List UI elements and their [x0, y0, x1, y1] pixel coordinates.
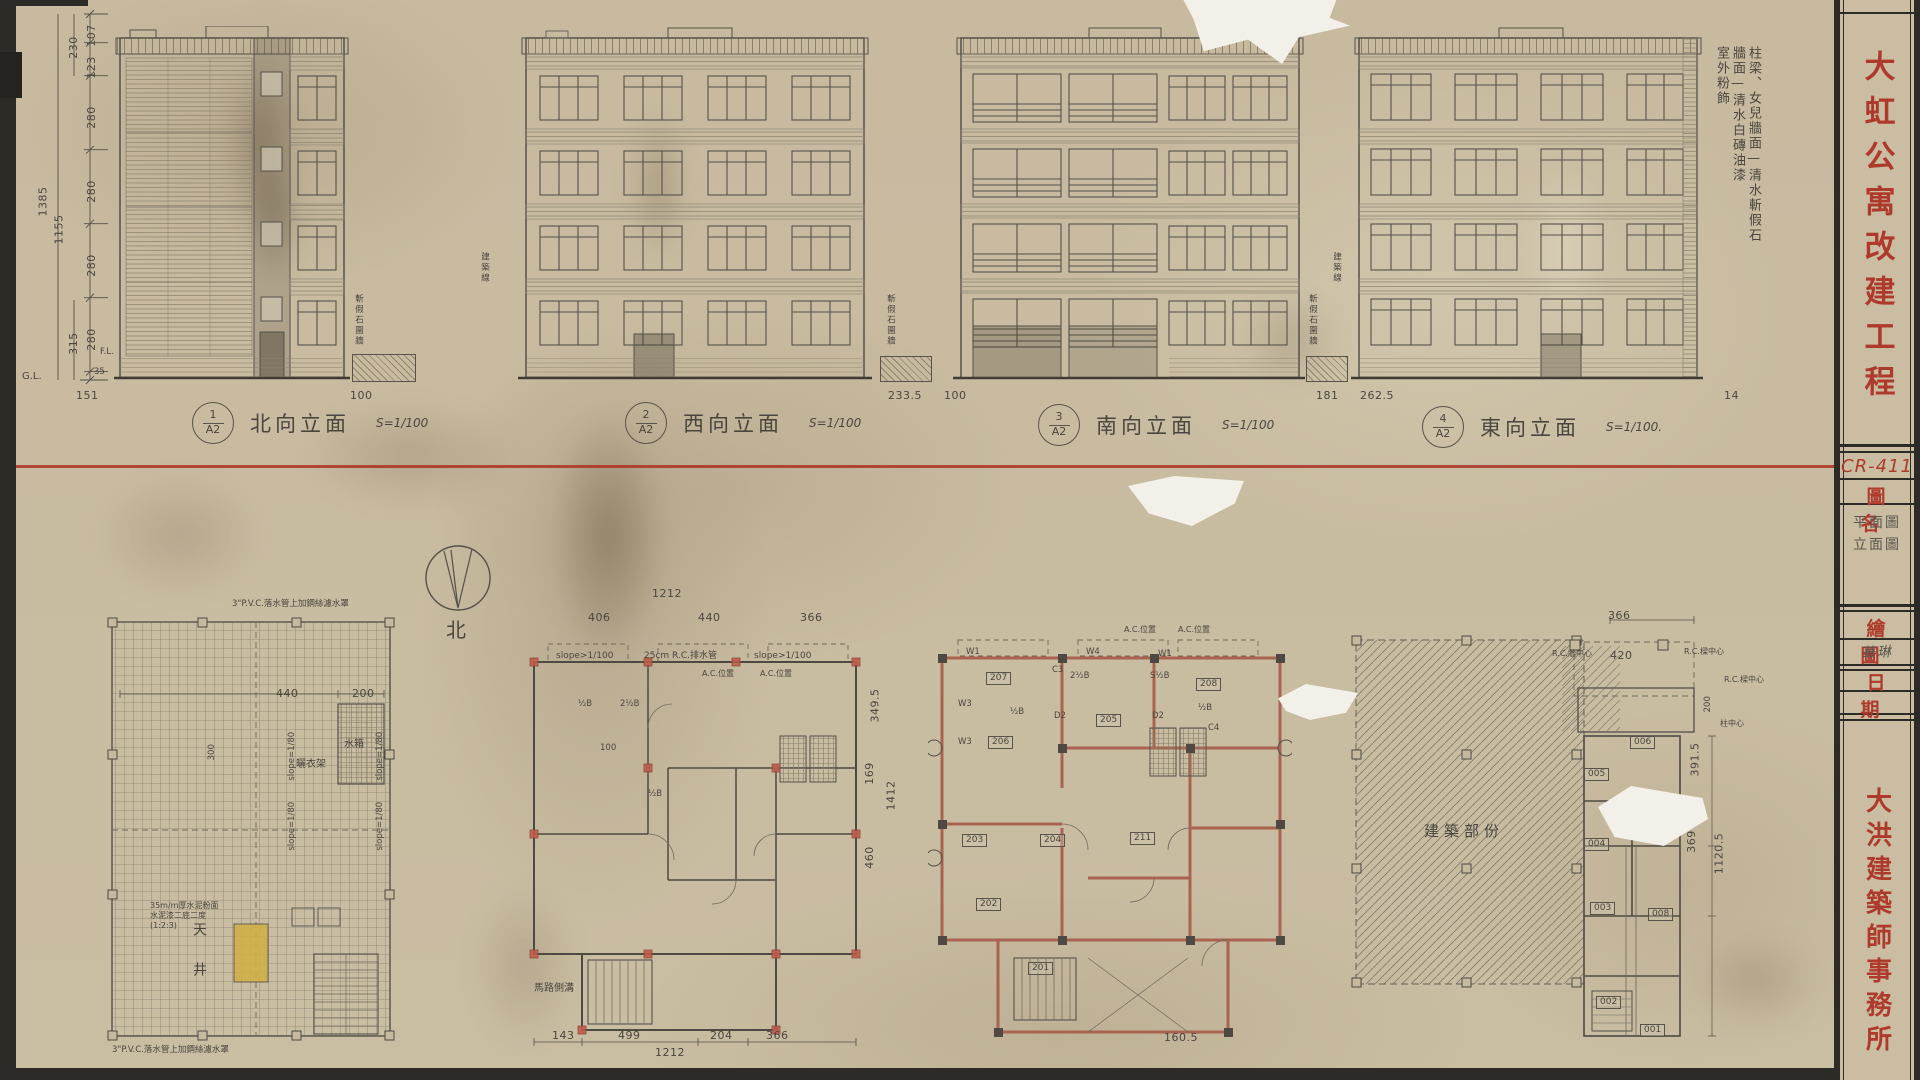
window-mark: W3: [958, 700, 972, 709]
existing-building-label: 建築部份: [1424, 824, 1504, 839]
elevation-scale: S=1/100: [376, 416, 428, 430]
blueprint-sheet: 107 123 280 280 280 280 35 230 315 1385 …: [0, 0, 1920, 1080]
ground-dim: 262.5: [1360, 390, 1394, 401]
plan2-right-dim: 169: [864, 762, 875, 785]
bubble-number: 3: [1049, 411, 1070, 426]
window-mark: W1: [966, 648, 980, 657]
sheet-border-top: [0, 0, 88, 6]
plan2-top-dim: 406: [588, 612, 611, 623]
dim-35: 35: [94, 368, 105, 377]
north-elevation-drawing: [114, 26, 350, 386]
detail-bubble: 1A2: [192, 402, 234, 444]
dim-230: 230: [68, 36, 79, 59]
elevation-scale: S=1/100: [809, 416, 861, 430]
fence-note: 斬假石圍牆: [354, 294, 363, 347]
slope-note: slope=1/80: [288, 802, 297, 851]
bubble-number: 1: [203, 409, 224, 424]
dim-280: 280: [86, 328, 97, 351]
room-number: 202: [976, 898, 1001, 911]
window-mark: C3: [1052, 666, 1063, 675]
roof-finish-note: (1:2:3): [150, 922, 177, 930]
title-block: 大虹公寓改建工程 CR-411 圖名 平面圖 立面圖 繪圖 華琳 日期 大洪建築…: [1834, 0, 1920, 1080]
plan5-dim: 420: [1610, 650, 1633, 661]
wall-thickness-mark: 2½B: [1070, 672, 1089, 681]
dim-1385: 1385: [38, 187, 49, 217]
beam-centerline-note: R.C.樑中心: [1684, 648, 1724, 656]
sheet-border-left: [0, 0, 16, 1080]
slope-note: slope=1/80: [376, 802, 385, 851]
detail-bubble: 2A2: [625, 402, 667, 444]
plan2-right-total: 1412: [886, 781, 897, 811]
wall-centerline-note: R.C.牆中心: [1552, 650, 1592, 658]
building-line-note: 建築線: [480, 252, 489, 284]
slope-note: slope=1/80: [288, 732, 297, 781]
finish-note-line: 室外粉飾: [1715, 46, 1728, 326]
red-divider-line: [0, 465, 1834, 468]
roof-dim-440: 440: [276, 688, 299, 699]
door-mark: D2: [1054, 712, 1066, 721]
bubble-sheet: A2: [1436, 428, 1451, 441]
wall-thickness-mark: ½B: [648, 790, 662, 799]
title-block-rule: [1840, 451, 1914, 453]
detail-bubble: 4A2: [1422, 406, 1464, 448]
drain-note: 25cm R.C.排水管: [644, 652, 717, 661]
project-title-cell: 大虹公寓改建工程: [1840, 20, 1914, 440]
east-elevation-drawing: [1351, 26, 1703, 386]
plan2-right-dim: 460: [864, 846, 875, 869]
finish-note-line: 柱梁、女兒牆面—清水斬假石: [1747, 46, 1760, 326]
detail-bubble: 3A2: [1038, 404, 1080, 446]
water-tank-label: 水箱: [344, 740, 364, 750]
elevation-scale: S=1/100: [1222, 418, 1274, 432]
room-number: 205: [1096, 714, 1121, 727]
plan5-dim: 200: [1704, 696, 1713, 712]
wall-thickness-mark: ½B: [1198, 704, 1212, 713]
title-block-rule: [1840, 604, 1914, 607]
ac-position-note: A.C.位置: [702, 670, 734, 678]
window-mark: W1: [1158, 650, 1172, 659]
fence-note: 斬假石圍牆: [1308, 294, 1317, 347]
sheet-border-left-blob: [0, 52, 22, 98]
wall-thickness-mark: ½B: [578, 700, 592, 709]
column-centerline-note: 柱中心: [1720, 720, 1744, 728]
fence-wall: [1306, 356, 1348, 382]
wall-thickness-mark: ½B: [1010, 708, 1024, 717]
north-compass-icon: [418, 542, 510, 618]
wall-thickness-mark: S½B: [1150, 672, 1169, 681]
ac-position-note: A.C.位置: [1124, 626, 1156, 634]
dim-315: 315: [68, 332, 79, 355]
downspout-note: 3"P.V.C.落水管上加鋼絲濾水罩: [232, 600, 349, 609]
typical-floor-plan-drawing: [518, 628, 872, 1060]
elevation-title: 南向立面: [1096, 410, 1196, 440]
elevation-caption-south: 3A2 南向立面 S=1/100: [1038, 404, 1274, 446]
room-number: 002: [1596, 996, 1621, 1009]
elevation-scale: S=1/100.: [1606, 420, 1662, 434]
plan2-right-dim: 349.5: [870, 689, 881, 723]
roof-finish-note: 水泥漆二底二度: [150, 912, 206, 920]
bubble-number: 2: [636, 409, 657, 424]
stain: [95, 470, 265, 600]
ground-dim: 100: [350, 390, 373, 401]
elevation-title: 北向立面: [250, 408, 350, 438]
room-number: 211: [1130, 832, 1155, 845]
ac-position-note: A.C.位置: [760, 670, 792, 678]
roof-plan-drawing: [106, 612, 398, 1048]
sheet-border-bottom: [0, 1068, 1920, 1080]
plan5-dim: 1120.5: [1713, 833, 1724, 875]
plan2-top-total: 1212: [652, 588, 682, 599]
title-block-rule: [1840, 610, 1914, 612]
elevation-title: 西向立面: [683, 408, 783, 438]
plan2-bottom-dim: 499: [618, 1030, 641, 1041]
ground-dim: 151: [76, 390, 99, 401]
dim-280: 280: [86, 254, 97, 277]
beam-centerline-note: R.C.樑中心: [1724, 676, 1764, 684]
downspout-note: 3"P.V.C.落水管上加鋼絲濾水罩: [112, 1046, 229, 1055]
elevation-caption-west: 2A2 西向立面 S=1/100: [625, 402, 861, 444]
ground-dim: 100: [944, 390, 967, 401]
roof-finish-note: 35m/m厚水泥粉面: [150, 902, 218, 910]
room-number: 004: [1584, 838, 1609, 851]
room-number: 207: [986, 672, 1011, 685]
building-line-note: 建築線: [1332, 252, 1341, 284]
project-title: 大虹公寓改建工程: [1855, 20, 1900, 440]
west-elevation-drawing: [518, 26, 872, 386]
title-block-rule: [1840, 444, 1914, 447]
plan5-dim: 369: [1686, 830, 1697, 853]
plan2-bottom-total: 1212: [655, 1047, 685, 1058]
ac-position-note: A.C.位置: [1178, 626, 1210, 634]
dim-107: 107: [86, 24, 97, 47]
door-mark: D2: [1152, 712, 1164, 721]
room-number: 005: [1584, 768, 1609, 781]
drawn-by-signature: 華琳: [1840, 640, 1915, 664]
paper-tear: [1128, 476, 1244, 526]
room-number: 204: [1040, 834, 1065, 847]
dim-123: 123: [86, 56, 97, 79]
room-number: 001: [1640, 1024, 1665, 1037]
lightwell-label: 天井: [192, 922, 206, 1002]
bubble-sheet: A2: [206, 424, 221, 437]
elevation-caption-north: 1A2 北向立面 S=1/100: [192, 402, 428, 444]
hatched-building-plan-drawing: [1346, 626, 1594, 998]
date-field-label: 日期: [1840, 668, 1914, 722]
room-number: 208: [1196, 678, 1221, 691]
plan3-bottom-dim: 160.5: [1164, 1032, 1198, 1043]
slope-note: slope>1/100: [754, 652, 811, 661]
window-mark: C4: [1208, 724, 1219, 733]
ground-dim: 233.5: [888, 390, 922, 401]
ground-line-label: G.L.: [22, 372, 42, 382]
plan2-top-dim: 440: [698, 612, 721, 623]
room-number: 203: [962, 834, 987, 847]
dim-1155: 1155: [54, 215, 65, 245]
drawing-name-value-line2: 立面圖: [1840, 534, 1914, 554]
roof-dim-300: 300: [208, 744, 217, 760]
elevation-title: 東向立面: [1480, 412, 1580, 442]
fence-wall: [880, 356, 932, 382]
drawing-name-value-line1: 平面圖: [1840, 512, 1914, 532]
dim-280: 280: [86, 106, 97, 129]
sheet-number: CR-411: [1840, 456, 1914, 477]
dim-280: 280: [86, 180, 97, 203]
window-mark: W4: [1086, 648, 1100, 657]
plan2-bottom-dim: 366: [766, 1030, 789, 1041]
road-gutter-note: 馬路側溝: [534, 984, 574, 994]
firm-name-cell: 大洪建築師事務所: [1840, 778, 1914, 1068]
room-number: 201: [1028, 962, 1053, 975]
title-block-rule: [1840, 478, 1914, 480]
exterior-finish-notes: 柱梁、女兒牆面—清水斬假石 牆面—清水白磚油漆 室外粉飾: [1712, 46, 1763, 326]
plan2-top-dim: 366: [800, 612, 823, 623]
wall-thickness-mark: 2½B: [620, 700, 639, 709]
roof-dim-200: 200: [352, 688, 375, 699]
window-mark: W3: [958, 738, 972, 747]
room-number: 008: [1648, 908, 1673, 921]
room-number: 006: [1630, 736, 1655, 749]
fence-wall: [352, 354, 416, 382]
bubble-number: 4: [1433, 413, 1454, 428]
ground-dim: 14: [1724, 390, 1739, 401]
plan2-bottom-dim: 143: [552, 1030, 575, 1041]
elevation-caption-east: 4A2 東向立面 S=1/100.: [1422, 406, 1662, 448]
ground-dim: 181: [1316, 390, 1339, 401]
room-number: 206: [988, 736, 1013, 749]
plan2-bottom-dim: 204: [710, 1030, 733, 1041]
plan5-dim: 366: [1608, 610, 1631, 621]
bubble-sheet: A2: [1052, 426, 1067, 439]
room-number: 003: [1590, 902, 1615, 915]
firm-name: 大洪建築師事務所: [1859, 778, 1896, 1068]
slope-note: slope>1/100: [556, 652, 613, 661]
bubble-sheet: A2: [639, 424, 654, 437]
drying-rack-label: 曬衣架: [296, 760, 326, 770]
plan5-dim: 391.5: [1690, 743, 1701, 777]
slope-note: slope=1/80: [376, 732, 385, 781]
finish-note-line: 牆面—清水白磚油漆: [1731, 46, 1744, 326]
south-elevation-drawing: [953, 26, 1305, 386]
plan2-inner-dim: 100: [600, 744, 616, 753]
title-block-rule: [1840, 12, 1914, 14]
north-label: 北: [446, 620, 466, 640]
floor-line-label: F.L.: [100, 348, 114, 357]
fence-note: 斬假石圍牆: [886, 294, 895, 347]
